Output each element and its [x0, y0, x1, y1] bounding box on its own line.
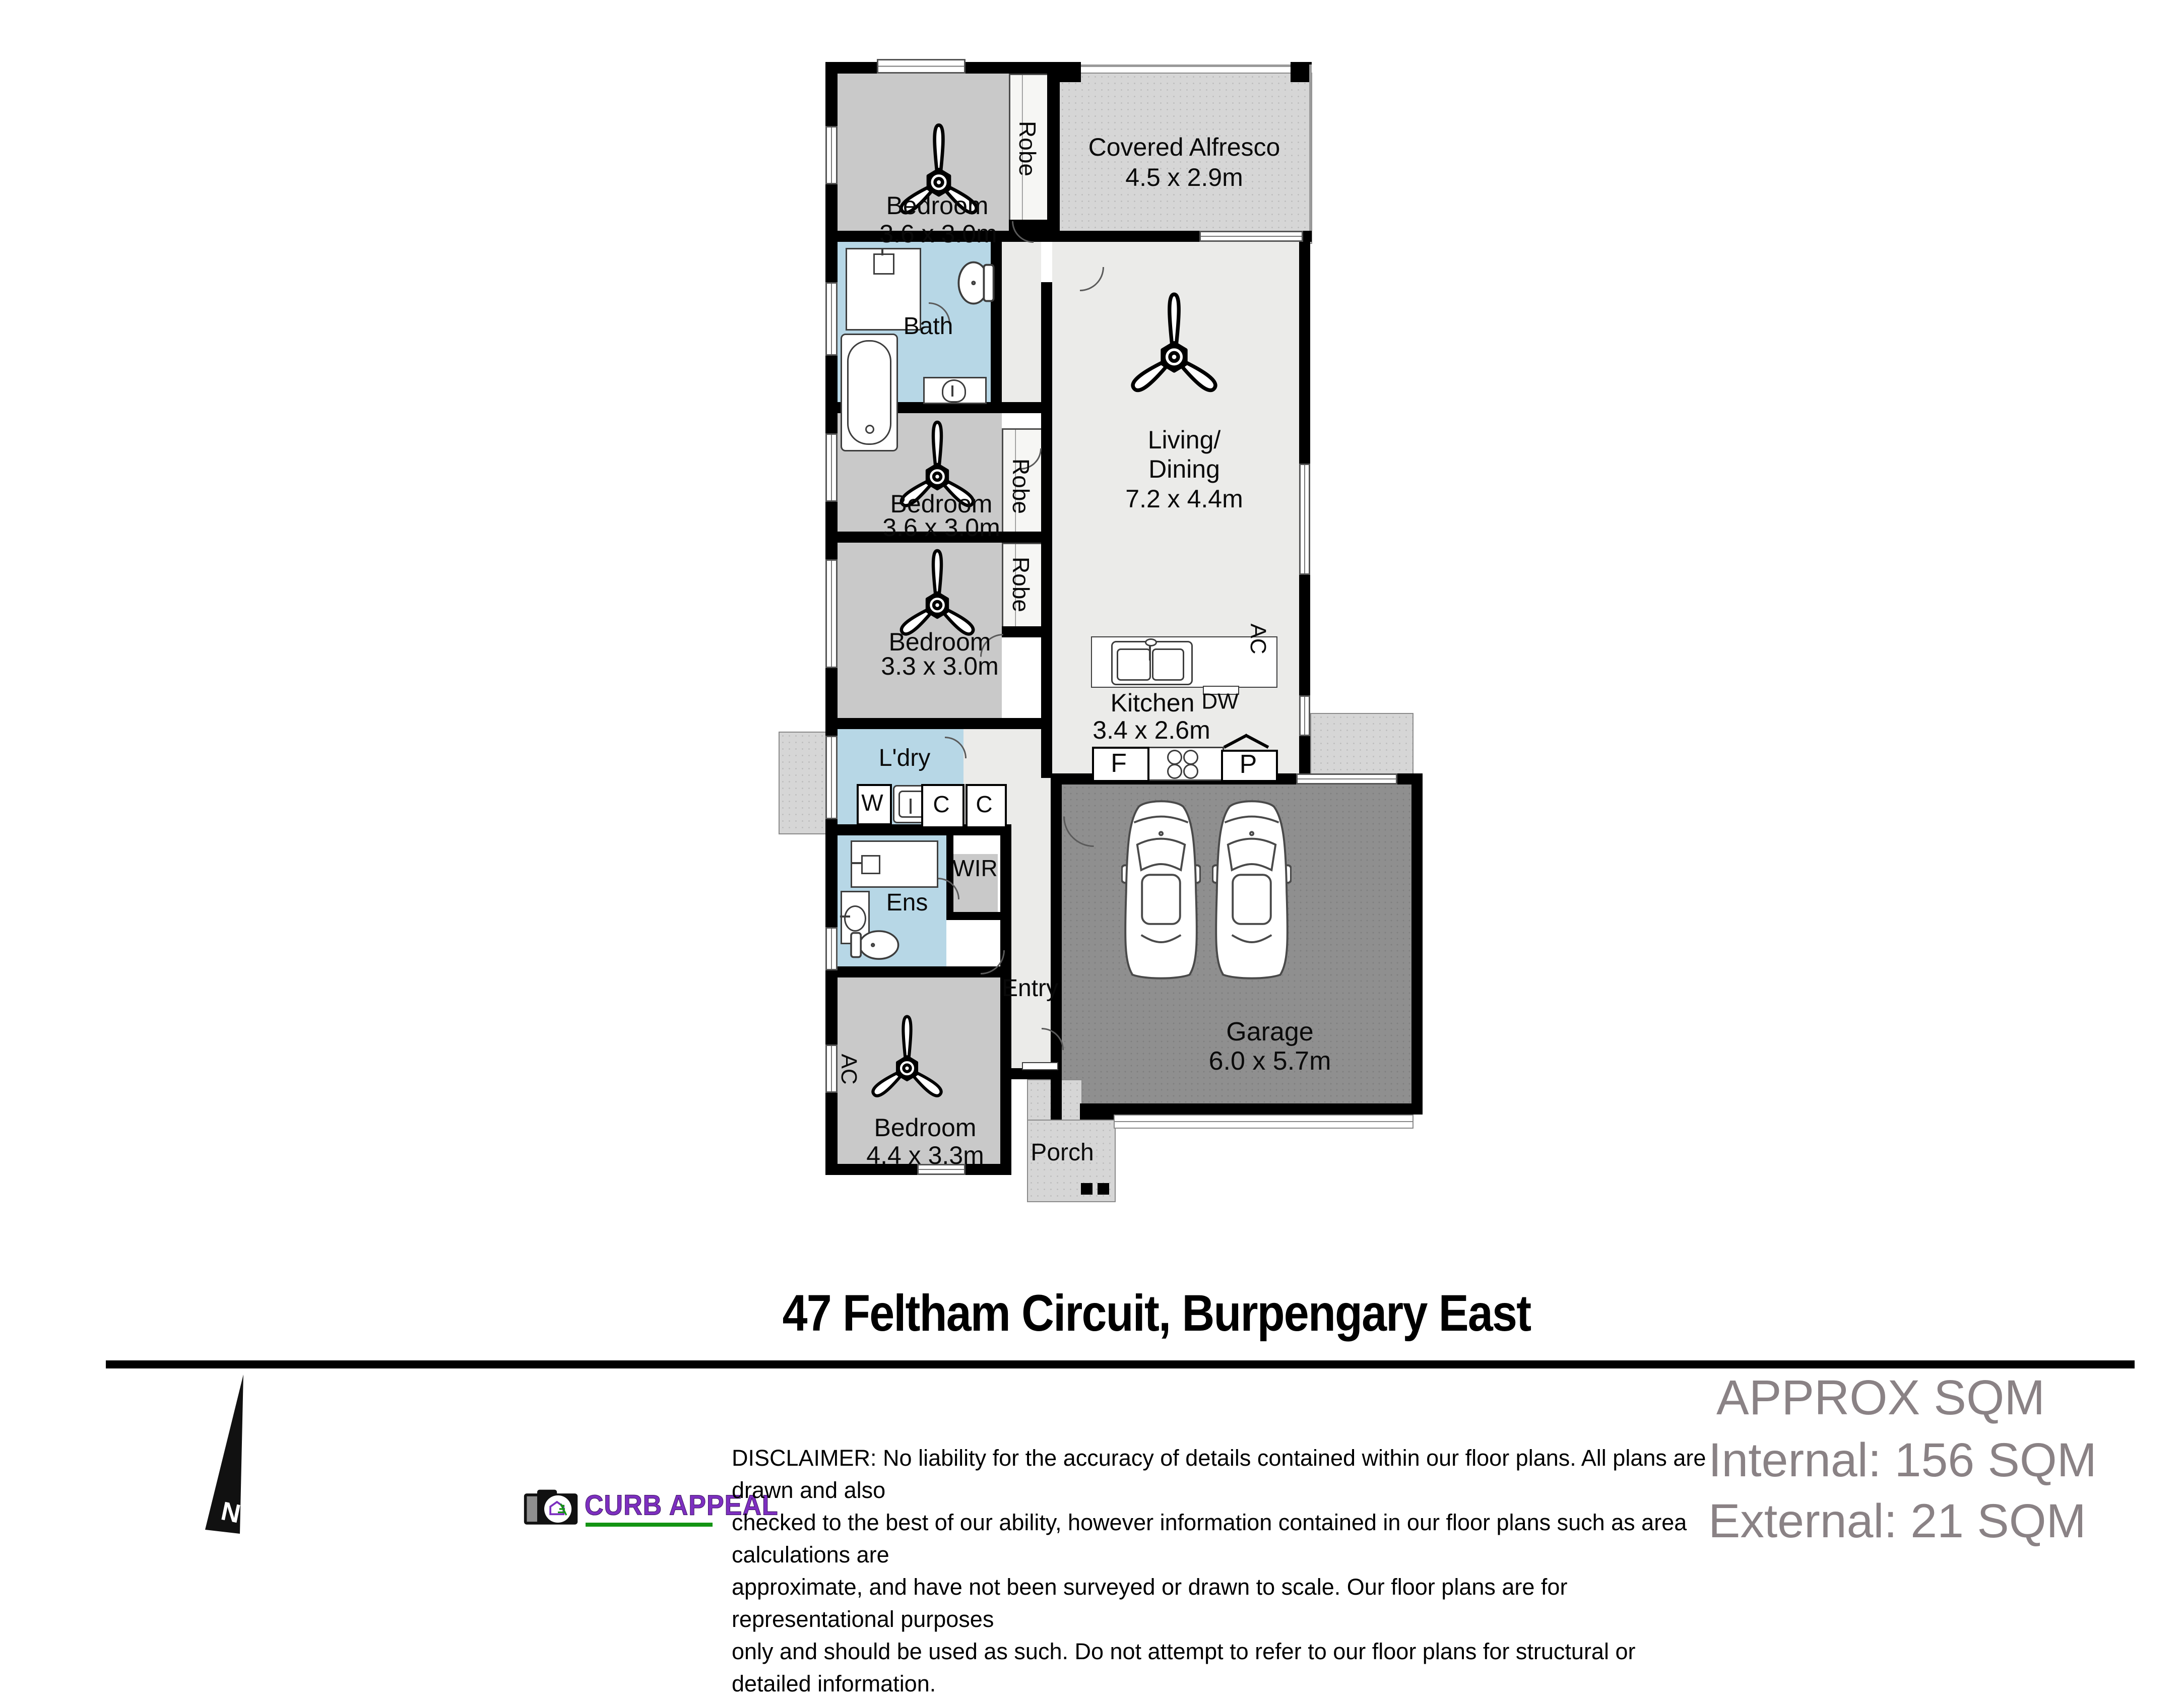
- label-fridge: F: [1111, 749, 1127, 778]
- label-washer: W: [861, 790, 883, 816]
- disclaimer-line: approximate, and have not been surveyed …: [732, 1571, 1719, 1636]
- garage-door-band: [1114, 1115, 1414, 1129]
- floorplan: Bedroom 3.6 x 3.0m Robe Covered Alfresco…: [0, 0, 2184, 1260]
- garage-car: [1212, 797, 1292, 979]
- label-bath: Bath: [904, 313, 953, 340]
- label-garage-dims: 6.0 x 5.7m: [1209, 1047, 1331, 1076]
- window: [825, 927, 838, 970]
- vanity-tap: [840, 916, 850, 918]
- label-living-dims: 7.2 x 4.4m: [1125, 485, 1243, 513]
- approx-heading: APPROX SQM: [1716, 1369, 2162, 1426]
- label-ensuite: Ens: [886, 889, 928, 917]
- alfresco-edge: [1309, 64, 1312, 242]
- bathtub-drain: [865, 425, 874, 434]
- label-garage-name: Garage: [1226, 1017, 1313, 1047]
- disclaimer-line: only and should be used as such. Do not …: [732, 1636, 1719, 1700]
- label-alfresco-name: Covered Alfresco: [1088, 133, 1280, 161]
- label-master-name: Bedroom: [874, 1114, 977, 1142]
- label-robe-3: Robe: [1007, 557, 1035, 612]
- north-arrow-icon: N: [191, 1365, 302, 1539]
- divider-line: [106, 1360, 2135, 1368]
- cooktop-burner: [1167, 764, 1182, 779]
- disclaimer-line: DISCLAIMER: No liability for the accurac…: [732, 1442, 1719, 1507]
- shower-head-icon: [861, 855, 880, 874]
- label-bedroom2-dims: 3.6 x 3.0m: [882, 513, 1000, 542]
- alfresco-edge: [1081, 64, 1291, 67]
- label-living-line2: Dining: [1148, 455, 1220, 483]
- wall: [1411, 773, 1423, 1115]
- car-top-view-icon: [1212, 797, 1292, 979]
- toilet-icon: [846, 928, 905, 964]
- sliding-door: [1199, 231, 1303, 242]
- window: [825, 126, 838, 184]
- label-pantry: P: [1240, 750, 1257, 779]
- label-robe-1: Robe: [1014, 121, 1041, 176]
- vanity-basin: [942, 379, 966, 403]
- label-ac-kitchen: AC: [1245, 623, 1270, 654]
- hallway-bath: [1002, 242, 1041, 402]
- label-living-line1: Living/: [1148, 426, 1221, 454]
- label-porch: Porch: [1031, 1139, 1094, 1166]
- porch-post: [1081, 1183, 1093, 1195]
- approx-sqm-block: APPROX SQM Internal: 156 SQM External: 2…: [1708, 1369, 2162, 1549]
- label-ac-master: AC: [836, 1054, 861, 1084]
- toilet-icon: [955, 252, 997, 311]
- window: [1299, 695, 1310, 736]
- window: [1296, 773, 1397, 784]
- wall: [1041, 282, 1052, 778]
- sink-tap-head: [1145, 638, 1157, 646]
- label-cupboard-2: C: [976, 792, 992, 818]
- window: [825, 433, 838, 502]
- ceiling-fan: [1116, 290, 1232, 406]
- vanity-tap: [951, 385, 953, 397]
- label-kitchen-name: Kitchen: [1111, 689, 1195, 717]
- label-alfresco-dims: 4.5 x 2.9m: [1125, 163, 1243, 191]
- cooktop-burner: [1183, 750, 1198, 765]
- kitchen-sink: [1111, 641, 1193, 685]
- label-bedroom1-name: Bedroom: [886, 191, 989, 220]
- curb-appeal-logo: CURB APPEAL: [523, 1489, 715, 1535]
- shower: [851, 840, 938, 888]
- outdoor-pad-right: [1310, 713, 1414, 774]
- ceiling-fan: [859, 1013, 955, 1108]
- ceiling-fan-icon: [1116, 290, 1232, 406]
- wall: [1080, 1103, 1114, 1120]
- label-master-dims: 4.4 x 3.3m: [866, 1141, 984, 1169]
- label-bedroom3-dims: 3.3 x 3.0m: [881, 652, 998, 680]
- porch-post: [1098, 1183, 1109, 1195]
- window: [877, 59, 966, 74]
- laundry-tap: [910, 799, 912, 814]
- sink-bowl-left: [1117, 648, 1151, 681]
- floorplan-page: { "plan": { "bedroom1": {"name": "Bedroo…: [0, 0, 2184, 1547]
- disclaimer-line: checked to the best of our ability, howe…: [732, 1507, 1719, 1571]
- wall: [1060, 62, 1081, 82]
- wall: [1080, 1103, 1423, 1115]
- label-kitchen-dims: 3.4 x 2.6m: [1093, 716, 1210, 744]
- front-door-leaf: [1022, 1062, 1058, 1070]
- window: [825, 282, 838, 356]
- garage-car: [1121, 797, 1201, 979]
- shower-stem: [851, 862, 862, 864]
- bath-vanity: [923, 377, 987, 404]
- approx-external: External: 21 SQM: [1708, 1494, 2162, 1549]
- shower-head-icon: [873, 253, 894, 275]
- camera-icon: [523, 1489, 580, 1528]
- label-robe-2: Robe: [1007, 459, 1035, 514]
- address-title: 47 Feltham Circuit, Burpengary East: [759, 1284, 1553, 1343]
- disclaimer: DISCLAIMER: No liability for the accurac…: [732, 1442, 1719, 1700]
- label-entry: Entry: [1002, 975, 1058, 1002]
- approx-internal: Internal: 156 SQM: [1708, 1433, 2162, 1488]
- cooktop-burner: [1183, 764, 1198, 779]
- window: [825, 559, 838, 668]
- shower-stem: [881, 248, 883, 255]
- window: [825, 736, 838, 819]
- cooktop-burner: [1167, 750, 1182, 765]
- wall: [1291, 62, 1312, 82]
- label-laundry: L'dry: [879, 745, 931, 772]
- label-bedroom1-dims: 3.6 x 3.0m: [879, 220, 997, 248]
- sink-bowl-right: [1152, 648, 1184, 681]
- label-cupboard-1: C: [933, 792, 949, 818]
- outdoor-pad-left: [779, 732, 828, 834]
- wall: [825, 718, 1052, 729]
- label-wir: WIR: [952, 856, 997, 882]
- window: [1299, 464, 1310, 575]
- label-dishwasher: DW: [1201, 689, 1238, 713]
- car-top-view-icon: [1121, 797, 1201, 979]
- logo-underline: [586, 1523, 713, 1527]
- ceiling-fan-icon: [859, 1013, 955, 1108]
- room-entry: [1011, 778, 1051, 1068]
